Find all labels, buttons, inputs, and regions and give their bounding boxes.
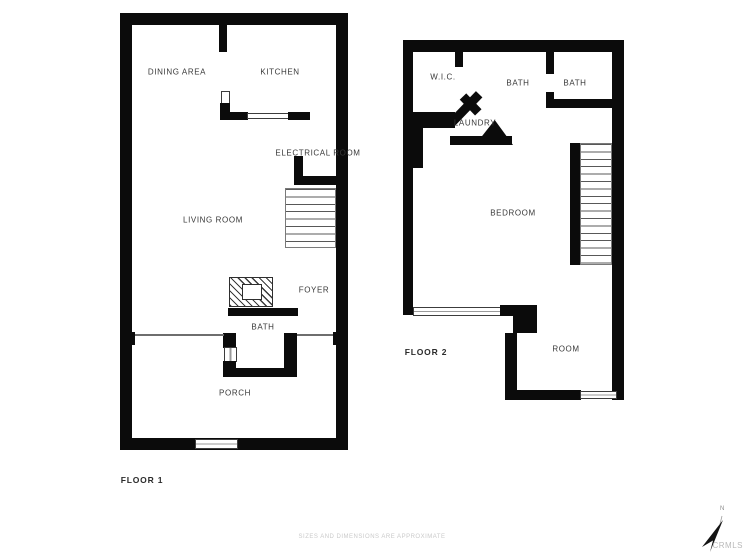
room-label-foyer: FOYER <box>299 286 330 295</box>
wall-segment <box>228 308 298 316</box>
wall-segment <box>219 25 227 52</box>
floor-plan-canvas: DINING AREA KITCHEN ELECTRICAL ROOM LIVI… <box>0 0 748 560</box>
wall-thin-line <box>130 334 224 336</box>
fireplace-inner <box>242 284 262 300</box>
wall-segment <box>120 13 348 25</box>
window <box>195 439 238 449</box>
wall-segment <box>403 128 423 168</box>
window <box>413 307 502 316</box>
floor1-title: FLOOR 1 <box>121 475 163 485</box>
room-label-bath-right: BATH <box>563 79 586 88</box>
room-label-bath-f1: BATH <box>251 323 274 332</box>
wall-segment <box>223 333 236 348</box>
wall-segment <box>546 99 612 108</box>
room-label-electrical-room: ELECTRICAL ROOM <box>275 149 360 158</box>
wall-segment <box>336 13 348 450</box>
room-label-laundry: LAUNDRY <box>454 119 496 128</box>
wall-segment <box>284 333 297 377</box>
room-label-living-room: LIVING ROOM <box>183 216 243 225</box>
wall-segment <box>612 40 624 400</box>
room-label-porch: PORCH <box>219 389 251 398</box>
wall-segment <box>120 13 132 450</box>
wall-segment <box>513 314 537 333</box>
counter-outline <box>247 113 289 119</box>
wall-segment <box>333 332 348 345</box>
window <box>224 347 237 362</box>
crmls-watermark: CRMLS <box>712 541 743 550</box>
room-label-room: ROOM <box>552 345 579 354</box>
wall-segment <box>288 112 310 120</box>
wall-segment <box>120 332 135 345</box>
room-label-wic: W.I.C. <box>430 73 455 82</box>
disclaimer-text: SIZES AND DIMENSIONS ARE APPROXIMATE <box>299 534 446 540</box>
staircase <box>285 188 336 248</box>
wall-segment <box>220 112 248 120</box>
wall-segment <box>294 176 338 185</box>
room-label-bath-mid: BATH <box>506 79 529 88</box>
room-label-bedroom: BEDROOM <box>490 209 536 218</box>
wall-segment <box>403 40 624 52</box>
floor2-title: FLOOR 2 <box>405 347 447 357</box>
wall-thin-line <box>297 334 336 336</box>
window <box>580 391 617 399</box>
wall-segment <box>570 143 580 265</box>
room-label-kitchen: KITCHEN <box>260 68 299 77</box>
room-label-dining-area: DINING AREA <box>148 68 206 77</box>
wall-segment <box>403 40 413 315</box>
wall-segment <box>505 390 581 400</box>
wall-segment <box>546 52 554 74</box>
wall-segment <box>455 52 463 67</box>
staircase <box>580 143 612 265</box>
